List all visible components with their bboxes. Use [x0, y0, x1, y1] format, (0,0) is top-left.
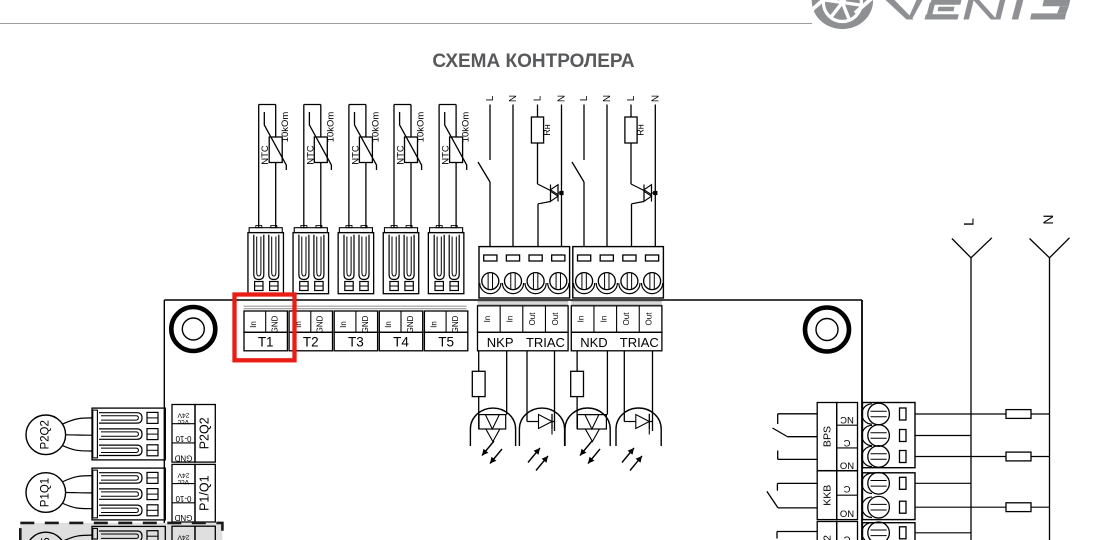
svg-text:GND: GND	[361, 315, 370, 333]
svg-text:L: L	[961, 218, 977, 226]
svg-text:NKD: NKD	[580, 335, 607, 350]
svg-text:L: L	[626, 95, 637, 101]
svg-text:Rн: Rн	[542, 124, 552, 135]
svg-text:GND: GND	[406, 315, 415, 333]
svg-text:NC: NC	[840, 414, 854, 425]
svg-text:10kOm: 10kOm	[461, 112, 472, 143]
svg-text:N: N	[557, 95, 568, 102]
svg-text:NTC: NTC	[441, 145, 452, 165]
svg-text:NTC: NTC	[305, 145, 316, 165]
svg-text:24V: 24V	[177, 412, 190, 419]
svg-text:СХЕМА КОНТРОЛЕРА: СХЕМА КОНТРОЛЕРА	[432, 51, 635, 72]
svg-text:NKP: NKP	[487, 335, 514, 350]
svg-text:T3: T3	[348, 335, 364, 350]
svg-text:Out: Out	[622, 312, 631, 326]
svg-text:NTC: NTC	[350, 145, 361, 165]
svg-text:10kOm: 10kOm	[280, 112, 291, 143]
svg-text:In: In	[384, 321, 393, 328]
svg-text:C: C	[843, 437, 850, 448]
svg-text:10kOm: 10kOm	[416, 112, 427, 143]
svg-text:P1Q1: P1Q1	[40, 478, 52, 507]
svg-text:C: C	[843, 533, 850, 540]
svg-text:In: In	[429, 321, 438, 328]
svg-text:GND: GND	[316, 315, 325, 333]
svg-text:In: In	[599, 316, 608, 323]
svg-text:N: N	[650, 95, 661, 102]
svg-text:In: In	[505, 316, 514, 323]
svg-text:P2Q2: P2Q2	[40, 420, 52, 449]
svg-text:Rн: Rн	[636, 124, 646, 135]
svg-text:L: L	[533, 95, 544, 101]
svg-text:24V: 24V	[177, 533, 190, 540]
svg-text:NTC: NTC	[396, 145, 407, 165]
svg-text:0-10: 0-10	[175, 434, 192, 443]
svg-text:L: L	[485, 95, 496, 101]
svg-text:T2: T2	[303, 335, 319, 350]
svg-text:P1/Q1: P1/Q1	[198, 475, 212, 510]
svg-text:VE2: VE2	[822, 535, 834, 540]
svg-text:NO: NO	[840, 508, 854, 519]
svg-text:In: In	[339, 321, 348, 328]
svg-text:In: In	[483, 316, 492, 323]
svg-text:In: In	[249, 321, 258, 328]
svg-text:L: L	[579, 95, 590, 101]
svg-text:NTC: NTC	[260, 145, 271, 165]
svg-text:NO: NO	[840, 459, 854, 470]
svg-text:P2Q2: P2Q2	[198, 417, 212, 449]
svg-text:Vcc: Vcc	[177, 418, 189, 425]
svg-text:BPS: BPS	[822, 426, 834, 447]
svg-text:T4: T4	[393, 335, 409, 350]
svg-text:TRIAC: TRIAC	[526, 335, 565, 350]
svg-text:GND: GND	[271, 315, 280, 333]
svg-text:24V: 24V	[177, 472, 190, 479]
svg-text:In: In	[577, 316, 586, 323]
svg-text:Out: Out	[551, 312, 560, 326]
svg-text:N: N	[602, 95, 613, 102]
svg-text:T1: T1	[258, 335, 274, 350]
svg-text:10kOm: 10kOm	[370, 112, 381, 143]
svg-text:GND: GND	[174, 453, 192, 462]
svg-text:Vcc: Vcc	[177, 478, 189, 485]
svg-text:Out: Out	[528, 312, 537, 326]
svg-text:0-10: 0-10	[175, 494, 192, 503]
svg-text:C: C	[843, 483, 850, 494]
svg-text:GND: GND	[451, 315, 460, 333]
svg-text:KKB: KKB	[822, 485, 834, 506]
svg-text:N: N	[508, 95, 519, 102]
svg-text:N: N	[1040, 214, 1056, 224]
svg-text:T5: T5	[438, 335, 454, 350]
svg-text:TRIAC: TRIAC	[620, 335, 659, 350]
svg-text:10kOm: 10kOm	[325, 112, 336, 143]
svg-text:Out: Out	[645, 312, 654, 326]
svg-text:GND: GND	[174, 513, 192, 522]
